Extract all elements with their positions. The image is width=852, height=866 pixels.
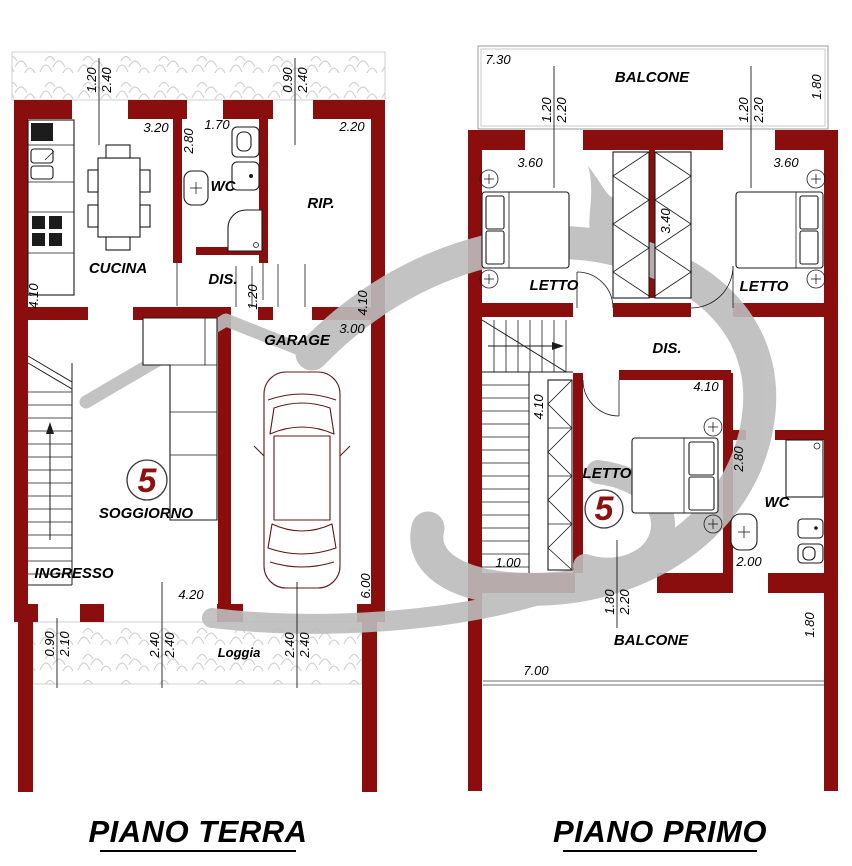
- room-label-letto-left: LETTO: [530, 277, 579, 294]
- dim-soggiorno-width: 4.20: [178, 587, 204, 602]
- balcony-bottom-rule: [483, 681, 824, 685]
- dim-balc-door-height: 2.20: [617, 589, 632, 616]
- dim-wardrobe-height: 3.40: [658, 208, 673, 234]
- dim-wc-first-height: 2.80: [731, 446, 746, 473]
- bed-bottom: [632, 438, 718, 513]
- floorplan-page: 1.20 2.40 0.90 2.40 3.20 2.80 1.70 2.20 …: [0, 0, 852, 866]
- room-label-cucina: CUCINA: [89, 260, 147, 277]
- dim-window-right-height: 2.40: [295, 67, 310, 94]
- room-label-rip: RIP.: [307, 195, 334, 212]
- wc-bidet: [232, 162, 259, 190]
- dim-balcone-top-width: 7.30: [485, 52, 511, 67]
- dim-window-left-height: 2.40: [99, 67, 114, 94]
- room-label-wc-first: WC: [765, 494, 791, 511]
- dim-pp-window-left-width: 1.20: [539, 97, 554, 123]
- garden-hatch-top: [12, 52, 385, 100]
- room-label-ingresso: INGRESSO: [34, 565, 114, 582]
- room-label-letto-right: LETTO: [740, 278, 789, 295]
- room-label-dis-first: DIS.: [652, 340, 681, 357]
- kitchen-counter: [28, 120, 74, 295]
- ground-floor-doors: [177, 263, 305, 307]
- dim-rip-width: 2.20: [338, 119, 365, 134]
- dim-loggia-door2-height: 2.40: [297, 632, 312, 659]
- wc-washbasin-first: [731, 514, 757, 550]
- dim-hall-width: 1.00: [495, 555, 521, 570]
- bed-left: [482, 192, 569, 268]
- dim-balcone-bottom-depth: 1.80: [802, 612, 817, 638]
- dim-right-side-height: 4.10: [355, 290, 370, 316]
- room-label-dis: DIS.: [208, 271, 237, 288]
- unit-number-first: 5: [595, 490, 615, 528]
- dim-balcone-top-depth: 1.80: [809, 74, 824, 100]
- plan-title-piano-primo: PIANO PRIMO: [553, 814, 767, 849]
- wc-washbasin: [184, 171, 208, 205]
- dim-pp-window-right-height: 2.20: [751, 97, 766, 124]
- room-label-soggiorno: SOGGIORNO: [99, 505, 194, 522]
- dim-wc-width: 1.70: [204, 117, 230, 132]
- dim-garage-height: 6.00: [358, 573, 373, 599]
- wc-shower-first: [786, 440, 823, 497]
- dim-loggia-door1-width: 2.40: [147, 632, 162, 659]
- wc-bidet-first: [798, 544, 823, 563]
- dim-letto-left-width: 3.60: [517, 155, 543, 170]
- dim-entry-height: 2.10: [57, 631, 72, 658]
- room-label-balcone-bottom: BALCONE: [614, 632, 689, 649]
- dim-wc-height: 2.80: [181, 128, 196, 155]
- dim-pp-window-right-width: 1.20: [736, 97, 751, 123]
- room-label-wc: WC: [211, 178, 237, 195]
- dim-cucina-width: 3.20: [143, 120, 169, 135]
- dim-letto-right-width: 3.60: [773, 155, 799, 170]
- plan-title-piano-terra: PIANO TERRA: [88, 814, 307, 849]
- dim-loggia-door1-height: 2.40: [162, 632, 177, 659]
- wc-toilet: [232, 127, 259, 157]
- staircase-ground: [28, 356, 72, 585]
- dim-pp-window-left-height: 2.20: [554, 97, 569, 124]
- wardrobe-lower: [548, 380, 572, 570]
- kitchen-table: [88, 145, 150, 250]
- unit-number: 5: [138, 462, 158, 500]
- floorplan-drawing: 1.20 2.40 0.90 2.40 3.20 2.80 1.70 2.20 …: [0, 0, 852, 866]
- dim-garage-width: 3.00: [339, 321, 365, 336]
- bed-right: [736, 192, 823, 268]
- dim-wc-first-width: 2.00: [735, 554, 762, 569]
- wc-toilet-first: [798, 519, 823, 538]
- dim-wardrobe2-height: 4.10: [531, 394, 546, 420]
- room-label-garage: GARAGE: [264, 332, 331, 349]
- balcony-top-border: [478, 46, 828, 129]
- dim-left-side-height: 4.10: [26, 283, 41, 309]
- dim-window-left-width: 1.20: [84, 67, 99, 93]
- car: [254, 372, 350, 588]
- wc-shower: [228, 210, 262, 251]
- dim-entry-width: 0.90: [42, 631, 57, 657]
- dim-loggia-door2-width: 2.40: [282, 632, 297, 659]
- dim-balc-door-width: 1.80: [602, 589, 617, 615]
- room-label-loggia: Loggia: [218, 645, 261, 660]
- dim-dis-door-width: 1.20: [245, 284, 260, 310]
- dim-letto-bottom-width: 4.10: [693, 379, 719, 394]
- dim-window-right-width: 0.90: [280, 67, 295, 93]
- room-label-letto-bottom: LETTO: [583, 465, 632, 482]
- dim-balcone-bottom-width: 7.00: [523, 663, 549, 678]
- room-label-balcone-top: BALCONE: [615, 69, 690, 86]
